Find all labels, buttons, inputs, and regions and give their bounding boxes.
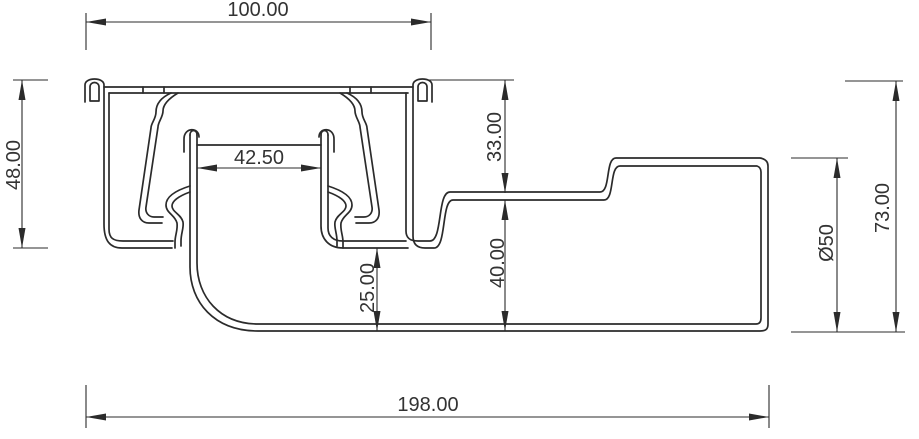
dim-label-trap-to-bottom: 25.00 [357, 263, 379, 313]
dim-label-outlet-top-to-bottom: 40.00 [487, 238, 509, 288]
dim-label-overall-length: 198.00 [397, 394, 458, 416]
arrowhead [19, 228, 26, 248]
left-rim-hook-inner [90, 83, 99, 102]
dim-label-inner-tube-width: 42.50 [234, 147, 284, 169]
drawing-canvas: 100.00 48.00 42.50 [0, 0, 919, 439]
arrowhead [502, 80, 509, 100]
body-outer-contour [190, 93, 768, 331]
arrowhead [834, 312, 841, 332]
standpipe-left-rim-cap [190, 131, 197, 136]
dimension-trap-to-bottom: 25.00 [357, 248, 381, 331]
bell-right-inner [340, 93, 372, 217]
standpipe-right-rim-cap [321, 131, 328, 136]
dimension-outlet-top-to-bottom: 40.00 [487, 200, 509, 331]
arrowhead [197, 165, 217, 172]
arrowhead [301, 165, 321, 172]
cad-drawing: 100.00 48.00 42.50 [0, 0, 919, 439]
dimension-flange-width: 100.00 [86, 0, 431, 50]
dim-label-overall-height: 73.00 [872, 183, 894, 233]
dimension-overall-height: 73.00 [845, 81, 903, 332]
dimension-inner-tube-width: 42.50 [197, 147, 321, 172]
dim-label-body-height: 48.00 [3, 140, 25, 190]
dimension-overall-length: 198.00 [86, 385, 769, 428]
dim-label-flange-to-outlet-top: 33.00 [484, 112, 506, 162]
arrowhead [86, 19, 106, 26]
dimension-flange-to-outlet-top: 33.00 [428, 80, 514, 193]
dim-label-flange-width: 100.00 [227, 0, 288, 21]
arrowhead [834, 158, 841, 178]
dim-label-outlet-diameter: Ø50 [816, 224, 838, 262]
arrowhead [86, 414, 106, 421]
standpipe-right-wall-outer [328, 135, 406, 241]
arrowhead [502, 200, 509, 220]
arrowhead [502, 311, 509, 331]
bell-left-inner [146, 93, 178, 217]
dimension-body-height: 48.00 [3, 80, 48, 248]
arrowhead [19, 80, 26, 100]
arrowhead [411, 19, 431, 26]
right-rim-hook-inner [418, 83, 427, 102]
arrowhead [502, 173, 509, 193]
arrowhead [893, 312, 900, 332]
arrowhead [893, 81, 900, 101]
part-outline [85, 79, 768, 331]
body-inner-contour [197, 79, 761, 324]
arrowhead [749, 414, 769, 421]
standpipe-left-collar-outer [166, 186, 190, 248]
